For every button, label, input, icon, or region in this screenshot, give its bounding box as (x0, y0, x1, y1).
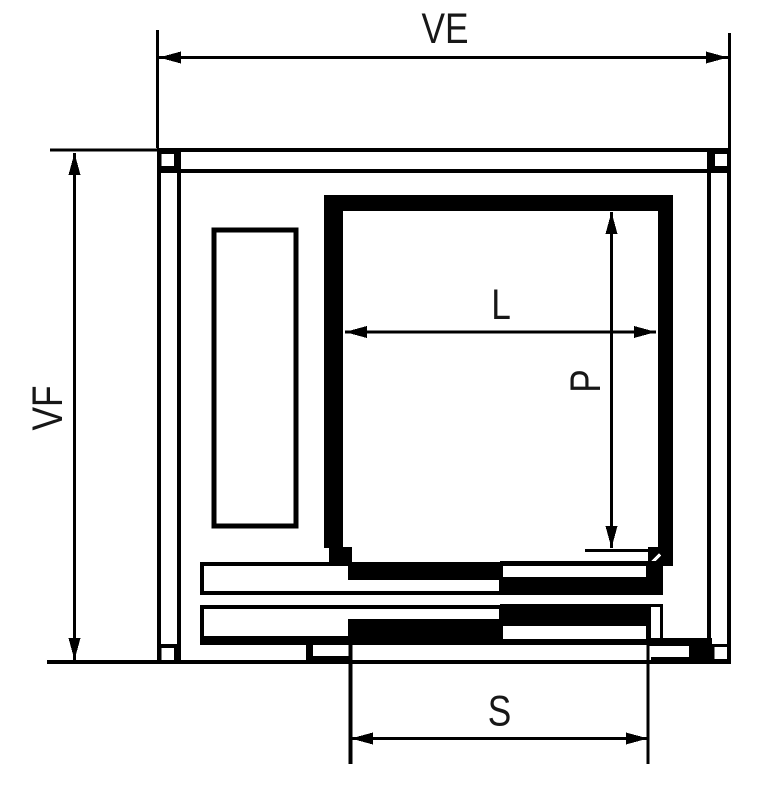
svg-text:VE: VE (421, 5, 468, 53)
svg-text:S: S (488, 687, 512, 735)
svg-text:L: L (491, 281, 511, 329)
svg-text:VF: VF (24, 385, 72, 430)
svg-text:P: P (562, 369, 610, 393)
